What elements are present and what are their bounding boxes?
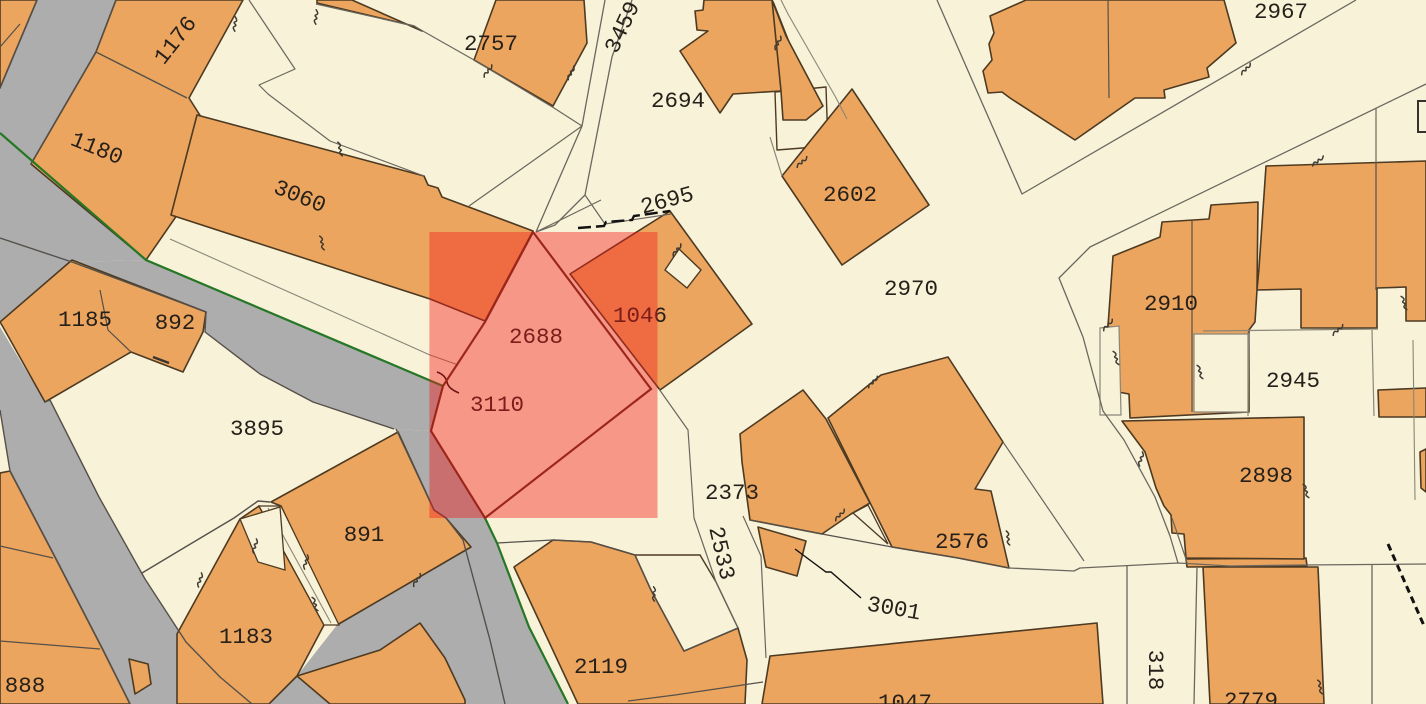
svg-text:2970: 2970 xyxy=(884,276,938,302)
svg-text:1047: 1047 xyxy=(878,690,932,704)
svg-text:2373: 2373 xyxy=(705,480,759,506)
svg-text:2910: 2910 xyxy=(1144,291,1198,317)
svg-text:2945: 2945 xyxy=(1266,368,1320,394)
svg-text:891: 891 xyxy=(344,522,385,548)
svg-text:2694: 2694 xyxy=(651,88,705,114)
svg-text:2119: 2119 xyxy=(574,654,628,680)
svg-text:1185: 1185 xyxy=(58,307,112,333)
svg-text:892: 892 xyxy=(155,310,196,336)
svg-text:3895: 3895 xyxy=(230,416,284,442)
svg-text:2757: 2757 xyxy=(464,31,518,57)
svg-text:2898: 2898 xyxy=(1239,463,1293,489)
svg-text:1183: 1183 xyxy=(219,624,273,650)
svg-text:2576: 2576 xyxy=(935,529,989,555)
svg-text:2779: 2779 xyxy=(1224,688,1278,704)
svg-text:2602: 2602 xyxy=(823,182,877,208)
svg-text:318: 318 xyxy=(1142,650,1168,691)
svg-text:2967: 2967 xyxy=(1254,0,1308,25)
svg-text:888: 888 xyxy=(5,673,46,699)
